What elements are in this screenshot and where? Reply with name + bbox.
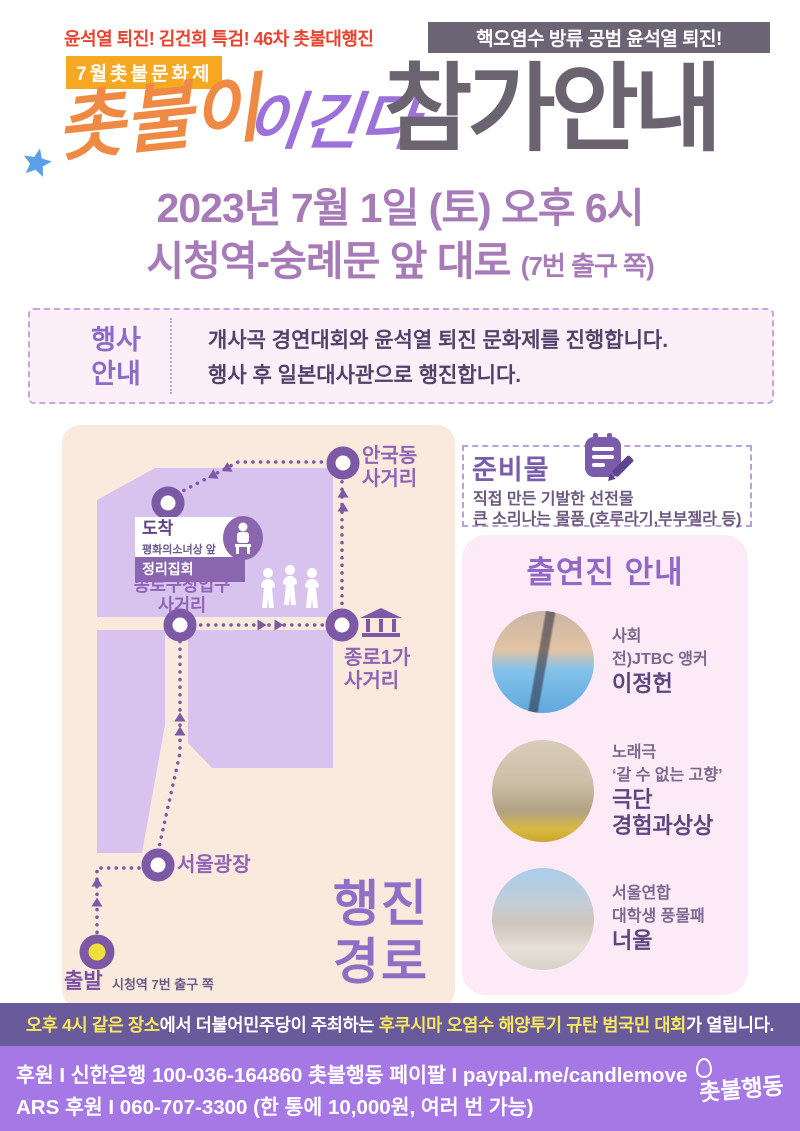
- performer-photo-emcee: [492, 611, 594, 713]
- paypal-address: paypal.me/candlemove: [463, 1064, 687, 1087]
- supplies-title: 준비물: [472, 448, 550, 487]
- performer-desc: 전)JTBC 앵커: [612, 649, 708, 671]
- peace-statue-icon: [222, 515, 264, 561]
- map-label-gucheong-line1: 종로구청입구: [118, 575, 246, 595]
- performer-info: 서울연합 대학생 풍물패 너울: [612, 883, 705, 954]
- performer-desc: ‘갈 수 없는 고향’: [612, 765, 723, 787]
- notice-text1: 에서 더불어민주당이 주최하는: [160, 1012, 379, 1037]
- node-start: [84, 939, 110, 965]
- performers-box: 출연진 안내 사회 전)JTBC 앵커 이정헌 노래극 ‘갈 수 없는 고향’ …: [462, 535, 748, 995]
- node-arrival: [156, 491, 180, 515]
- map-label-jongno1ga-line1: 종로1가: [344, 647, 410, 670]
- notice-text2: 가 열립니다.: [686, 1012, 774, 1037]
- donate-label: 후원 I: [16, 1064, 71, 1087]
- map-label-anguk-line2: 사거리: [362, 468, 417, 491]
- ars-number: 060-707-3300 (한 통에 10,000원, 여러 번 가능): [120, 1096, 534, 1119]
- map-block-east: [188, 630, 333, 768]
- paypal-label: 페이팔 I: [389, 1064, 463, 1087]
- title-script-word: 촛불이: [53, 72, 264, 167]
- performer-role: 노래극: [612, 742, 723, 764]
- supplies-line2: 큰 소리나는 물품 (호루라기,부부젤라 등): [473, 505, 741, 529]
- pavilion-icon: [360, 605, 402, 639]
- event-desc-line2: 행사 후 일본대사관으로 행진합니다.: [208, 359, 668, 394]
- ars-label: ARS 후원 I: [16, 1096, 120, 1119]
- schedule-block: 2023년 7월 1일 (토) 오후 6시 시청역-숭례문 앞 대로 (7번 출…: [0, 184, 800, 286]
- map-title-line1: 행진: [314, 875, 448, 933]
- schedule-line2: 시청역-숭례문 앞 대로 (7번 출구 쪽): [0, 237, 800, 286]
- page-title: 참가안내: [384, 62, 717, 158]
- schedule-line1: 2023년 7월 1일 (토) 오후 6시: [0, 184, 800, 233]
- node-plaza: [146, 853, 170, 877]
- map-label-jongno1ga: 종로1가 사거리: [344, 647, 410, 693]
- performers-title: 출연진 안내: [462, 547, 748, 592]
- event-info-box: 행사 안내 개사곡 경연대회와 윤석열 퇴진 문화제를 진행합니다. 행사 후 …: [28, 308, 774, 404]
- performer-desc: 대학생 풍물패: [612, 906, 705, 928]
- performer-name-line2: 경험과상상: [612, 813, 723, 839]
- donate-account: 신한은행 100-036-164860 촛불행동: [71, 1064, 389, 1087]
- performer-row: 사회 전)JTBC 앵커 이정헌: [492, 611, 708, 713]
- event-info-description: 개사곡 경연대회와 윤석열 퇴진 문화제를 진행합니다. 행사 후 일본대사관으…: [208, 324, 668, 393]
- top-slogan-line: 윤석열 퇴진! 김건희 특검! 46차 촛불대행진: [64, 25, 373, 51]
- protest-poster: 윤석열 퇴진! 김건희 특검! 46차 촛불대행진 핵오염수 방류 공범 윤석열…: [0, 0, 800, 1131]
- march-route-map: 안국동 사거리 도착 평화의소녀상 앞 정리집회 종로구청입구 사거리: [62, 425, 455, 1008]
- node-anguk: [331, 451, 355, 475]
- schedule-exit-note: (7번 출구 쪽): [521, 251, 654, 281]
- notice-highlight1: 오후 4시 같은 장소: [26, 1012, 160, 1037]
- event-desc-line1: 개사곡 경연대회와 윤석열 퇴진 문화제를 진행합니다.: [208, 324, 668, 359]
- map-block-west: [97, 630, 165, 853]
- map-label-jongno1ga-line2: 사거리: [344, 670, 410, 693]
- performer-name-line1: 극단: [612, 787, 723, 813]
- map-title-line2: 경로: [314, 933, 448, 991]
- memo-pencil-icon: [580, 431, 638, 487]
- performer-row: 서울연합 대학생 풍물패 너울: [492, 868, 705, 970]
- performer-info: 노래극 ‘갈 수 없는 고향’ 극단 경험과상상: [612, 742, 723, 840]
- dotted-divider: [170, 318, 172, 394]
- node-jongno1ga: [330, 613, 354, 637]
- performer-role: 서울연합: [612, 883, 705, 905]
- event-info-label: 행사 안내: [66, 324, 166, 392]
- footer-donation-line: 후원 I 신한은행 100-036-164860 촛불행동 페이팔 I payp…: [16, 1058, 687, 1088]
- performer-photo-pungmul: [492, 868, 594, 970]
- map-title: 행진 경로: [314, 875, 448, 991]
- performer-row: 노래극 ‘갈 수 없는 고향’ 극단 경험과상상: [492, 740, 723, 842]
- candle-action-logo: 촛불행동: [698, 1066, 785, 1107]
- event-info-label-line1: 행사: [66, 324, 166, 358]
- performer-role: 사회: [612, 626, 708, 648]
- performer-name: 너울: [612, 928, 705, 954]
- map-label-gucheong: 종로구청입구 사거리: [118, 575, 246, 615]
- footer-ars-line: ARS 후원 I 060-707-3300 (한 통에 10,000원, 여러 …: [16, 1090, 533, 1120]
- map-start-sublabel: 시청역 7번 출구 쪽: [112, 974, 214, 993]
- performer-info: 사회 전)JTBC 앵커 이정헌: [612, 626, 708, 697]
- map-label-gucheong-line2: 사거리: [118, 595, 246, 615]
- supplies-box: 준비물 직접 만든 기발한 선전물 큰 소리나는 물품 (호루라기,부부젤라 등…: [462, 445, 752, 527]
- top-right-banner: 핵오염수 방류 공범 윤석열 퇴진!: [428, 22, 770, 53]
- star-icon: [19, 145, 54, 180]
- node-gucheong: [168, 613, 192, 637]
- marchers-icon: [258, 565, 322, 615]
- footer-bar: 후원 I 신한은행 100-036-164860 촛불행동 페이팔 I payp…: [0, 1046, 800, 1131]
- schedule-place: 시청역-숭례문 앞 대로: [146, 238, 520, 284]
- performer-photo-theater: [492, 740, 594, 842]
- map-start-label: 출발: [64, 965, 103, 995]
- performer-name: 이정헌: [612, 671, 708, 697]
- notice-highlight2: 후쿠시마 오염수 해양투기 규탄 범국민 대회: [379, 1012, 686, 1037]
- event-info-label-line2: 안내: [66, 358, 166, 392]
- notice-bar: 오후 4시 같은 장소에서 더불어민주당이 주최하는 후쿠시마 오염수 해양투기…: [0, 1003, 800, 1046]
- map-label-plaza: 서울광장: [177, 854, 251, 877]
- map-label-anguk-line1: 안국동: [362, 445, 417, 468]
- map-label-anguk: 안국동 사거리: [362, 445, 417, 491]
